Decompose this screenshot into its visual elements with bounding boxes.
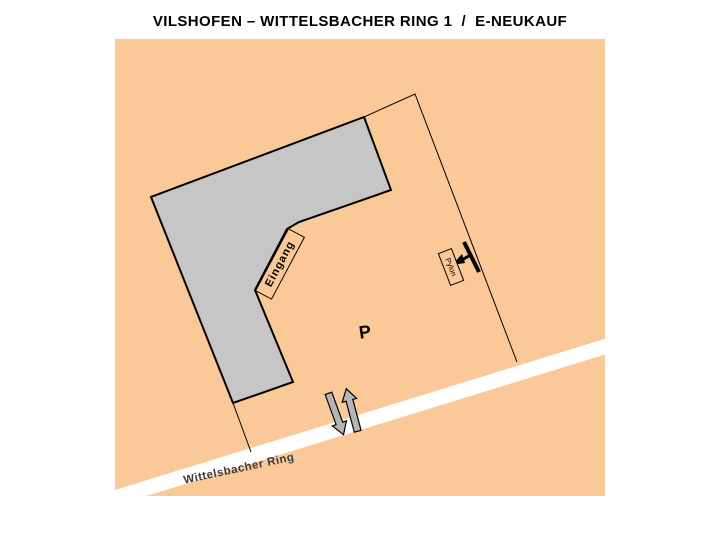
- page: VILSHOFEN – WITTELSBACHER RING 1 / E-NEU…: [0, 0, 720, 540]
- site-map-canvas: Eingang P Pylon Wittels: [115, 39, 605, 496]
- page-title: VILSHOFEN – WITTELSBACHER RING 1 / E-NEU…: [0, 13, 720, 30]
- site-map: Eingang P Pylon Wittels: [115, 39, 605, 496]
